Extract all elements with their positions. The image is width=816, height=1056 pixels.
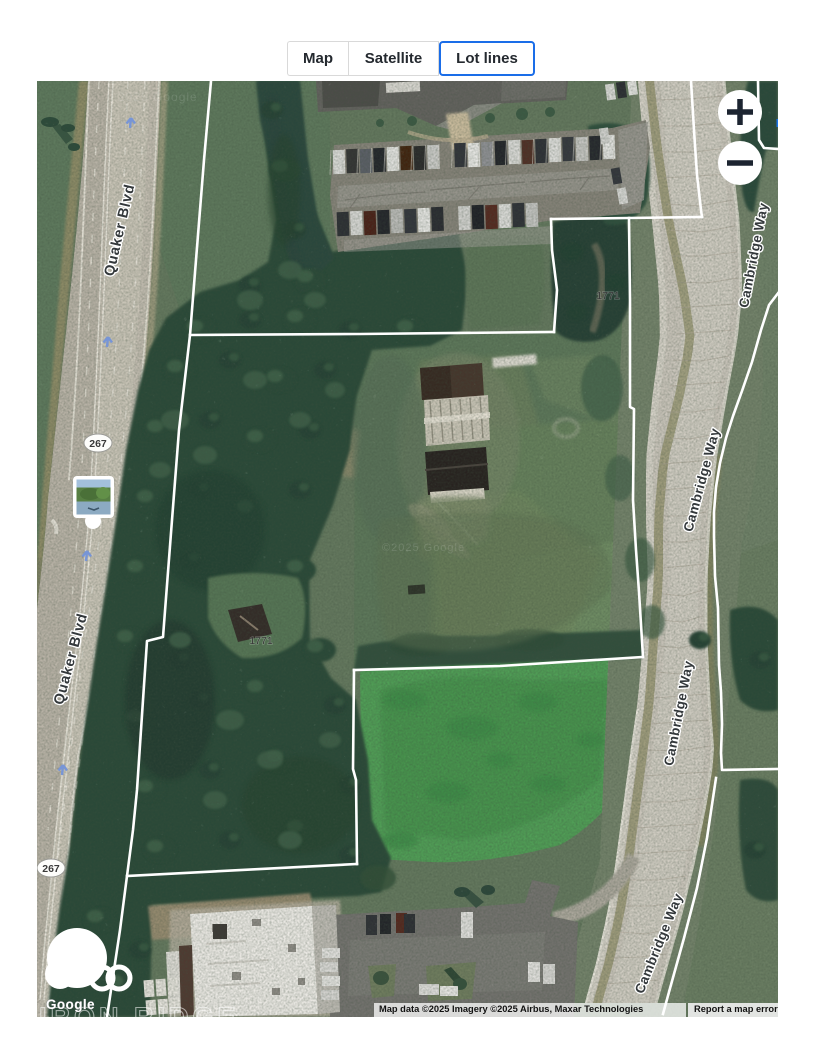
svg-text:Map data ©2025 Imagery ©2025: Map data ©2025 Imagery ©2025 Airbus, Max…: [379, 1004, 643, 1014]
svg-text:1771: 1771: [596, 290, 620, 302]
svg-text:267: 267: [42, 863, 60, 875]
svg-text:1771: 1771: [249, 635, 273, 647]
svg-text:Google: Google: [46, 997, 95, 1012]
svg-text:Report a map error: Report a map error: [694, 1004, 778, 1014]
svg-text:267: 267: [89, 438, 107, 450]
